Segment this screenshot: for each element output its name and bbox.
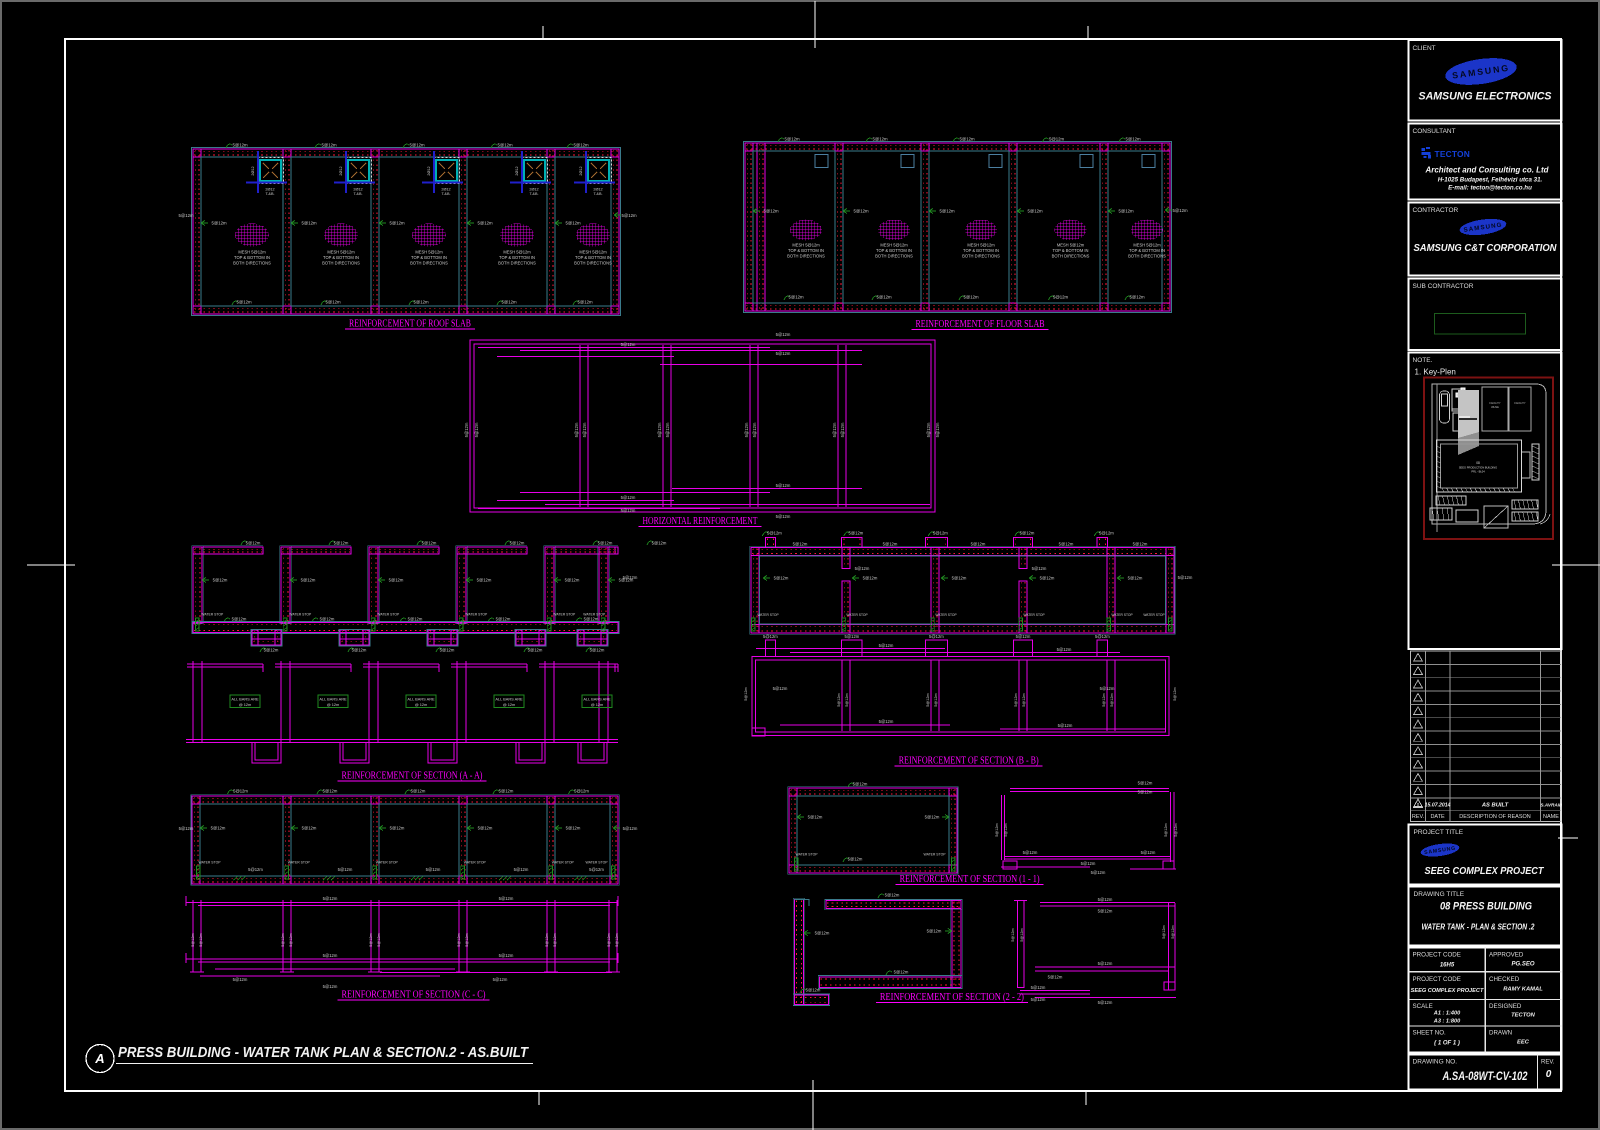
svg-text:5@12m: 5@12m	[929, 634, 944, 639]
svg-text:T.&B.: T.&B.	[265, 192, 274, 196]
svg-text:BOTH DIRECTIONS: BOTH DIRECTIONS	[233, 260, 271, 265]
svg-text:1. Key-Plen: 1. Key-Plen	[1415, 368, 1456, 377]
svg-text:2Ø12: 2Ø12	[339, 166, 343, 175]
svg-text:DRAWING NO.: DRAWING NO.	[1413, 1059, 1458, 1066]
svg-text:PG.SEO: PG.SEO	[1511, 962, 1534, 968]
svg-text:A3 : 1:800: A3 : 1:800	[1433, 1019, 1461, 1025]
svg-text:PROJECT CODE: PROJECT CODE	[1413, 976, 1461, 983]
svg-text:5@12m: 5@12m	[497, 143, 513, 148]
svg-text:5@12m: 5@12m	[832, 422, 837, 437]
svg-text:2Ø12: 2Ø12	[579, 166, 583, 175]
svg-text:5@12m: 5@12m	[971, 542, 986, 547]
svg-text:A: A	[94, 1051, 104, 1066]
svg-text:5@12m: 5@12m	[845, 634, 860, 639]
svg-text:WATER STOP: WATER STOP	[376, 861, 399, 865]
svg-text:5@12m: 5@12m	[925, 815, 940, 820]
svg-text:5@12m: 5@12m	[1098, 909, 1113, 914]
svg-text:5@12m: 5@12m	[1058, 723, 1073, 728]
svg-text:5@12m: 5@12m	[233, 977, 248, 982]
svg-text:5@12m: 5@12m	[574, 789, 589, 794]
svg-text:5@12m: 5@12m	[855, 566, 870, 571]
svg-text:5@12m: 5@12m	[389, 221, 405, 226]
svg-text:WHSE: WHSE	[1491, 405, 1499, 409]
svg-text:BOTH DIRECTIONS: BOTH DIRECTIONS	[1128, 253, 1166, 258]
svg-text:TOP & BOTTOM IN: TOP & BOTTOM IN	[323, 255, 359, 260]
svg-text:5@12m: 5@12m	[514, 867, 529, 872]
svg-text:DRAWN: DRAWN	[1489, 1030, 1512, 1037]
svg-text:5@12m: 5@12m	[1014, 693, 1018, 706]
svg-text:5@12m: 5@12m	[621, 342, 636, 347]
svg-text:5@12m: 5@12m	[598, 541, 613, 546]
svg-text:WATER STOP: WATER STOP	[1023, 613, 1045, 617]
svg-text:5@12m: 5@12m	[1048, 975, 1063, 980]
svg-text:T.&B.: T.&B.	[529, 192, 538, 196]
svg-text:5@12m: 5@12m	[872, 137, 888, 142]
svg-text:5@12m: 5@12m	[320, 617, 335, 622]
svg-text:5@12m: 5@12m	[178, 213, 194, 218]
svg-text:5@12m: 5@12m	[1178, 575, 1193, 580]
svg-text:5@12m: 5@12m	[1129, 295, 1145, 300]
svg-text:BOTH DIRECTIONS: BOTH DIRECTIONS	[962, 253, 1000, 258]
svg-text:5@12m: 5@12m	[477, 221, 493, 226]
svg-text:5@12m: 5@12m	[553, 933, 557, 946]
svg-text:@ 12m: @ 12m	[503, 702, 516, 707]
svg-text:ALL BARS ARE: ALL BARS ARE	[319, 697, 347, 702]
svg-text:5@12m: 5@12m	[199, 933, 203, 946]
svg-text:T.&B.: T.&B.	[593, 192, 602, 196]
svg-text:5@12m: 5@12m	[334, 541, 349, 546]
svg-text:5@12m: 5@12m	[885, 893, 900, 898]
svg-text:REV.: REV.	[1541, 1060, 1555, 1066]
svg-text:5@12m: 5@12m	[1173, 687, 1177, 700]
svg-text:5@12m: 5@12m	[657, 422, 662, 437]
svg-text:@ 12m: @ 12m	[239, 702, 252, 707]
svg-text:5@12m: 5@12m	[763, 209, 779, 214]
svg-text:5@12m: 5@12m	[264, 648, 279, 653]
svg-text:PROJECT TITLE: PROJECT TITLE	[1414, 829, 1464, 836]
svg-text:5@12m: 5@12m	[952, 576, 967, 581]
svg-text:WATER STOP: WATER STOP	[201, 613, 224, 617]
svg-text:2Ø12: 2Ø12	[427, 166, 431, 175]
svg-text:5@12m: 5@12m	[652, 541, 667, 546]
svg-text:2Ø12: 2Ø12	[251, 166, 255, 175]
svg-text:5@12m: 5@12m	[927, 929, 942, 934]
svg-text:5@12m: 5@12m	[1020, 928, 1024, 941]
svg-text:5@12m: 5@12m	[301, 578, 316, 583]
svg-text:5@12m: 5@12m	[211, 221, 227, 226]
svg-text:RAMY KAMAL: RAMY KAMAL	[1503, 987, 1543, 993]
svg-text:5@12m: 5@12m	[496, 617, 511, 622]
svg-text:TOP & BOTTOM IN: TOP & BOTTOM IN	[575, 255, 611, 260]
svg-text:PROJECT CODE: PROJECT CODE	[1413, 952, 1461, 959]
svg-text:( 1 OF 1 ): ( 1 OF 1 )	[1434, 1041, 1460, 1047]
svg-text:5@12m: 5@12m	[623, 826, 638, 831]
svg-text:HORIZONTAL REINFORCEMENT: HORIZONTAL REINFORCEMENT	[643, 515, 758, 527]
svg-text:5@12m: 5@12m	[776, 483, 791, 488]
svg-text:WATER STOP: WATER STOP	[552, 861, 575, 865]
svg-text:WATER STOP: WATER STOP	[846, 613, 868, 617]
svg-text:BOTH DIRECTIONS: BOTH DIRECTIONS	[1052, 253, 1090, 258]
svg-text:REINFORCEMENT OF SECTION (B -: REINFORCEMENT OF SECTION (B - B)	[899, 755, 1039, 767]
svg-text:5@12m: 5@12m	[784, 137, 800, 142]
svg-text:AS BUILT: AS BUILT	[1481, 803, 1509, 809]
svg-text:DESCRIPTION OF REASON: DESCRIPTION OF REASON	[1459, 814, 1531, 820]
svg-text:5@12m: 5@12m	[408, 617, 423, 622]
svg-text:WATER STOP: WATER STOP	[289, 613, 312, 617]
svg-text:5@12m: 5@12m	[323, 789, 338, 794]
svg-text:5@12m: 5@12m	[1091, 870, 1106, 875]
svg-text:5@12m: 5@12m	[1031, 985, 1046, 990]
svg-text:WATER STOP: WATER STOP	[464, 861, 487, 865]
svg-text:5@12m: 5@12m	[621, 508, 636, 513]
svg-text:5@12m: 5@12m	[413, 300, 429, 305]
svg-text:5@12m: 5@12m	[883, 542, 898, 547]
svg-text:5@12m: 5@12m	[876, 295, 892, 300]
svg-text:2Ø12: 2Ø12	[515, 166, 519, 175]
svg-text:2Ø12: 2Ø12	[593, 188, 602, 192]
svg-text:5@12m: 5@12m	[1141, 850, 1156, 855]
svg-text:5@12m: 5@12m	[845, 693, 849, 706]
svg-text:SAMSUNG C&T CORPORATION: SAMSUNG C&T CORPORATION	[1414, 243, 1558, 254]
svg-text:5@12m: 5@12m	[1032, 566, 1047, 571]
svg-text:TOP & BOTTOM IN: TOP & BOTTOM IN	[963, 248, 999, 253]
svg-text:NOTE.: NOTE.	[1413, 357, 1433, 364]
svg-text:5@12m: 5@12m	[621, 213, 637, 218]
svg-text:MESH 5@12m: MESH 5@12m	[503, 250, 531, 255]
svg-text:5@12m: 5@12m	[477, 578, 492, 583]
svg-text:5@12m: 5@12m	[233, 789, 248, 794]
svg-text:CONTRACTOR: CONTRACTOR	[1413, 207, 1459, 214]
svg-text:TOP & BOTTOM IN: TOP & BOTTOM IN	[788, 248, 824, 253]
svg-text:5@12m: 5@12m	[853, 209, 869, 214]
svg-text:SUB CONTRACTOR: SUB CONTRACTOR	[1413, 283, 1474, 290]
svg-text:5@12m: 5@12m	[323, 984, 338, 989]
svg-text:SHEET NO.: SHEET NO.	[1413, 1030, 1447, 1037]
svg-text:ALL BARS ARE: ALL BARS ARE	[495, 697, 523, 702]
svg-text:SCALE: SCALE	[1413, 1003, 1433, 1010]
svg-text:@ 12m: @ 12m	[415, 702, 428, 707]
svg-text:APPROVED: APPROVED	[1489, 952, 1524, 959]
svg-text:5@12m: 5@12m	[774, 576, 789, 581]
svg-text:2Ø12: 2Ø12	[529, 188, 538, 192]
svg-text:5@12m: 5@12m	[584, 617, 599, 622]
svg-text:5@12m: 5@12m	[369, 933, 373, 946]
svg-text:WATER STOP: WATER STOP	[377, 613, 400, 617]
svg-text:EEC: EEC	[1517, 1040, 1530, 1046]
svg-text:5@12m: 5@12m	[545, 933, 549, 946]
svg-text:5@12m: 5@12m	[848, 857, 863, 862]
svg-text:5@12m: 5@12m	[1138, 790, 1153, 795]
svg-text:2Ø12: 2Ø12	[353, 188, 362, 192]
svg-text:5@12m: 5@12m	[1057, 647, 1072, 652]
svg-text:5@12m: 5@12m	[1049, 137, 1065, 142]
svg-text:BOTH DIRECTIONS: BOTH DIRECTIONS	[787, 253, 825, 258]
svg-text:5@12m: 5@12m	[1162, 925, 1166, 938]
svg-text:5@12m: 5@12m	[1125, 137, 1141, 142]
svg-text:TOP & BOTTOM IN: TOP & BOTTOM IN	[499, 255, 535, 260]
svg-text:5@12m: 5@12m	[1110, 693, 1114, 706]
svg-text:5@12m: 5@12m	[1040, 576, 1055, 581]
svg-text:BOTH DIRECTIONS: BOTH DIRECTIONS	[410, 260, 448, 265]
svg-text:16H5: 16H5	[1440, 963, 1455, 969]
svg-text:5@12m: 5@12m	[935, 422, 940, 437]
svg-text:SEEG COMPLEX PROJECT: SEEG COMPLEX PROJECT	[1425, 866, 1545, 877]
svg-text:5@12m: 5@12m	[191, 933, 195, 946]
svg-text:5@12m: 5@12m	[776, 351, 791, 356]
svg-text:5@12m: 5@12m	[499, 789, 514, 794]
svg-text:5@12m: 5@12m	[582, 422, 587, 437]
svg-text:WATER STOP: WATER STOP	[553, 613, 576, 617]
svg-text:BOTH DIRECTIONS: BOTH DIRECTIONS	[498, 260, 536, 265]
svg-text:5@12m: 5@12m	[464, 422, 469, 437]
svg-text:5@12m: 5@12m	[934, 693, 938, 706]
svg-text:5@12m: 5@12m	[840, 422, 845, 437]
svg-text:TOP & BOTTOM IN: TOP & BOTTOM IN	[876, 248, 912, 253]
svg-text:5@12m: 5@12m	[338, 867, 353, 872]
svg-text:5@12m: 5@12m	[281, 933, 285, 946]
svg-text:WATER STOP: WATER STOP	[465, 613, 488, 617]
svg-text:E-mail: tecton@tecton.co.hu: E-mail: tecton@tecton.co.hu	[1448, 185, 1532, 192]
svg-text:5@12m: 5@12m	[422, 541, 437, 546]
svg-text:5@12m: 5@12m	[1138, 781, 1153, 786]
svg-text:PRESS BUILDING - WATER TANK PL: PRESS BUILDING - WATER TANK PLAN & SECTI…	[118, 1044, 530, 1061]
svg-text:MESH 5@12m: MESH 5@12m	[415, 250, 443, 255]
svg-text:5@12m: 5@12m	[808, 815, 823, 820]
svg-text:@ 12m: @ 12m	[327, 702, 340, 707]
svg-text:5@12m: 5@12m	[573, 143, 589, 148]
svg-text:5@12m: 5@12m	[352, 648, 367, 653]
svg-text:ALL BARS ARE: ALL BARS ARE	[231, 697, 259, 702]
svg-text:5@12m: 5@12m	[849, 531, 864, 536]
svg-text:FACILITY: FACILITY	[1489, 401, 1501, 405]
svg-text:0: 0	[1546, 1069, 1552, 1080]
svg-text:REINFORCEMENT OF SECTION (A -: REINFORCEMENT OF SECTION (A - A)	[342, 770, 483, 782]
svg-text:5@12m: 5@12m	[1023, 850, 1038, 855]
svg-text:5@12m: 5@12m	[528, 648, 543, 653]
svg-text:5@12m: 5@12m	[744, 422, 749, 437]
svg-text:T.&B.: T.&B.	[353, 192, 362, 196]
svg-text:15.07.2014: 15.07.2014	[1425, 803, 1451, 809]
svg-text:5@12m: 5@12m	[744, 687, 748, 700]
svg-text:5@12m: 5@12m	[493, 977, 508, 982]
svg-text:MESH 5@12m: MESH 5@12m	[327, 250, 355, 255]
svg-text:5@12m: 5@12m	[474, 422, 479, 437]
svg-text:5@12m: 5@12m	[577, 300, 593, 305]
svg-text:5@12m: 5@12m	[615, 933, 619, 946]
svg-text:5@12m: 5@12m	[933, 531, 948, 536]
svg-text:5@12m: 5@12m	[1011, 928, 1015, 941]
svg-text:REV.: REV.	[1412, 814, 1425, 820]
svg-text:5@12m: 5@12m	[879, 719, 894, 724]
svg-text:SAMSUNG ELECTRONICS: SAMSUNG ELECTRONICS	[1419, 91, 1552, 103]
svg-text:5@12m: 5@12m	[232, 617, 247, 622]
svg-text:MESH 5@12m: MESH 5@12m	[880, 243, 908, 248]
svg-text:5@12m: 5@12m	[1164, 823, 1168, 836]
svg-text:5@12m: 5@12m	[793, 542, 808, 547]
svg-text:5@12m: 5@12m	[995, 823, 999, 836]
svg-text:MESH 5@12m: MESH 5@12m	[238, 250, 266, 255]
svg-text:5@12m: 5@12m	[879, 643, 894, 648]
svg-text:Architect and Consulting co. L: Architect and Consulting co. Ltd	[1425, 166, 1550, 175]
svg-text:5@12m: 5@12m	[323, 953, 338, 958]
svg-text:5@12m: 5@12m	[1027, 209, 1043, 214]
svg-text:A1 : 1:400: A1 : 1:400	[1433, 1011, 1461, 1017]
svg-text:5@12m: 5@12m	[574, 422, 579, 437]
svg-text:5@12m: 5@12m	[621, 495, 636, 500]
svg-text:5@12m: 5@12m	[926, 693, 930, 706]
svg-text:WATER STOP: WATER STOP	[935, 613, 957, 617]
svg-text:WATER STOP: WATER STOP	[796, 853, 819, 857]
svg-text:REINFORCEMENT OF FLOOR SLAB: REINFORCEMENT OF FLOOR SLAB	[916, 318, 1045, 330]
svg-text:WATER STOP: WATER STOP	[288, 861, 311, 865]
svg-text:WATER STOP: WATER STOP	[583, 613, 606, 617]
svg-text:FACILITY: FACILITY	[1514, 401, 1526, 405]
svg-text:5@12m: 5@12m	[1059, 542, 1074, 547]
svg-text:5@12m: 5@12m	[1133, 542, 1148, 547]
svg-text:REINFORCEMENT OF SECTION (C -: REINFORCEMENT OF SECTION (C - C)	[342, 989, 486, 1001]
svg-text:5@12m: 5@12m	[323, 896, 338, 901]
svg-text:5@12m: 5@12m	[499, 896, 514, 901]
svg-text:CLIENT: CLIENT	[1413, 45, 1436, 52]
svg-text:@ 12m: @ 12m	[591, 702, 604, 707]
svg-text:WATER TANK - PLAN & SECTION .2: WATER TANK - PLAN & SECTION .2	[1422, 923, 1535, 932]
svg-text:5@12m: 5@12m	[806, 988, 821, 993]
svg-text:MESH 5@12m: MESH 5@12m	[1057, 243, 1085, 248]
svg-text:CHECKED: CHECKED	[1489, 976, 1520, 983]
svg-text:5@12m: 5@12m	[863, 576, 878, 581]
svg-text:BOTH DIRECTIONS: BOTH DIRECTIONS	[322, 260, 360, 265]
svg-text:T.&B.: T.&B.	[441, 192, 450, 196]
svg-text:5@12m: 5@12m	[289, 933, 293, 946]
svg-text:5@12m: 5@12m	[389, 578, 404, 583]
svg-text:MESH 5@12m: MESH 5@12m	[792, 243, 820, 248]
svg-text:WATER STOP: WATER STOP	[757, 613, 779, 617]
svg-text:5@12m: 5@12m	[837, 693, 841, 706]
svg-text:ALL BARS ARE: ALL BARS ARE	[583, 697, 611, 702]
svg-text:5@12m: 5@12m	[815, 931, 830, 936]
svg-text:5@12m: 5@12m	[1004, 823, 1008, 836]
svg-text:NAME: NAME	[1543, 814, 1559, 820]
svg-text:5@12m: 5@12m	[246, 541, 261, 546]
svg-text:S.AVRAM: S.AVRAM	[1540, 803, 1561, 808]
svg-text:MESH 5@12m: MESH 5@12m	[967, 243, 995, 248]
svg-text:5@12m: 5@12m	[1031, 997, 1046, 1002]
svg-text:5@12m: 5@12m	[1099, 531, 1114, 536]
svg-text:5@12m: 5@12m	[1118, 209, 1134, 214]
svg-text:DRAWING TITLE: DRAWING TITLE	[1414, 891, 1465, 898]
svg-text:REINFORCEMENT OF SECTION (2 -: REINFORCEMENT OF SECTION (2 - 2)	[880, 991, 1024, 1003]
svg-text:ALL BARS ARE: ALL BARS ARE	[407, 697, 435, 702]
svg-text:5@12m: 5@12m	[763, 634, 778, 639]
svg-text:5@12m: 5@12m	[1016, 634, 1031, 639]
svg-text:WATER STOP: WATER STOP	[924, 853, 947, 857]
svg-text:5@12m: 5@12m	[1022, 693, 1026, 706]
svg-text:5@12m: 5@12m	[752, 422, 757, 437]
svg-text:REINFORCEMENT OF ROOF SLAB: REINFORCEMENT OF ROOF SLAB	[349, 318, 471, 330]
svg-text:5@12m: 5@12m	[566, 826, 581, 831]
svg-text:WATER STOP: WATER STOP	[1111, 613, 1133, 617]
svg-text:5@12m: 5@12m	[565, 221, 581, 226]
svg-text:5@12m: 5@12m	[440, 648, 455, 653]
svg-text:TOP & BOTTOM IN: TOP & BOTTOM IN	[234, 255, 270, 260]
svg-text:5@12m: 5@12m	[1020, 531, 1035, 536]
svg-text:5@12m: 5@12m	[236, 300, 252, 305]
svg-text:5@12m: 5@12m	[409, 143, 425, 148]
svg-text:5@12m: 5@12m	[325, 300, 341, 305]
svg-text:5@12m: 5@12m	[1172, 208, 1188, 213]
svg-text:SEEG PRODUCTION BUILDING: SEEG PRODUCTION BUILDING	[1459, 466, 1497, 470]
svg-text:5@12m: 5@12m	[788, 295, 804, 300]
svg-text:H-1025 Budapest, Felhévizi utc: H-1025 Budapest, Felhévizi utca 31.	[1438, 177, 1543, 184]
svg-text:5@12m: 5@12m	[776, 332, 791, 337]
svg-text:TECTON: TECTON	[1435, 149, 1470, 159]
svg-text:5@12m: 5@12m	[426, 867, 441, 872]
svg-text:5@12m: 5@12m	[589, 867, 604, 872]
svg-text:5@12m: 5@12m	[1171, 925, 1175, 938]
svg-text:5@12m: 5@12m	[1098, 961, 1113, 966]
svg-text:TOP & BOTTOM IN: TOP & BOTTOM IN	[1053, 248, 1089, 253]
svg-text:5@12m: 5@12m	[926, 422, 931, 437]
svg-text:WATER STOP: WATER STOP	[586, 861, 609, 865]
svg-text:5@12m: 5@12m	[776, 514, 791, 519]
svg-text:MESH 5@12m: MESH 5@12m	[1133, 243, 1161, 248]
svg-text:CONSULTANT: CONSULTANT	[1413, 128, 1456, 135]
svg-text:5@12m: 5@12m	[302, 826, 317, 831]
svg-text:2Ø12: 2Ø12	[441, 188, 450, 192]
svg-text:DESIGNED: DESIGNED	[1489, 1003, 1522, 1010]
svg-text:5@12m: 5@12m	[510, 541, 525, 546]
svg-text:5@12m: 5@12m	[248, 867, 263, 872]
svg-text:BOTH DIRECTIONS: BOTH DIRECTIONS	[574, 260, 612, 265]
svg-text:5@12m: 5@12m	[1128, 576, 1143, 581]
svg-text:5@12m: 5@12m	[457, 933, 461, 946]
svg-text:TOP & BOTTOM IN: TOP & BOTTOM IN	[1129, 248, 1165, 253]
svg-text:5@12m: 5@12m	[773, 686, 788, 691]
svg-text:5@12m: 5@12m	[894, 970, 909, 975]
svg-text:TECTON: TECTON	[1511, 1013, 1536, 1019]
svg-text:5@12m: 5@12m	[377, 933, 381, 946]
svg-text:5@12m: 5@12m	[501, 300, 517, 305]
svg-text:5@12m: 5@12m	[665, 422, 670, 437]
svg-text:5@12m: 5@12m	[179, 826, 194, 831]
svg-text:5@12m: 5@12m	[390, 826, 405, 831]
svg-text:5@12m: 5@12m	[853, 782, 868, 787]
svg-text:5@12m: 5@12m	[1053, 295, 1069, 300]
svg-text:5@12m: 5@12m	[963, 295, 979, 300]
svg-text:WATER STOP: WATER STOP	[199, 861, 222, 865]
svg-text:5@12m: 5@12m	[1098, 1000, 1113, 1005]
svg-text:5@12m: 5@12m	[232, 143, 248, 148]
svg-text:5@12m: 5@12m	[1100, 686, 1115, 691]
svg-text:REINFORCEMENT OF SECTION (1 -: REINFORCEMENT OF SECTION (1 - 1)	[900, 873, 1040, 885]
svg-text:5@12m: 5@12m	[321, 143, 337, 148]
svg-text:5@12m: 5@12m	[959, 137, 975, 142]
svg-text:5@12m: 5@12m	[1098, 897, 1113, 902]
svg-text:5@12m: 5@12m	[301, 221, 317, 226]
svg-text:5@12m: 5@12m	[499, 953, 514, 958]
svg-text:08 PRESS BUILDING: 08 PRESS BUILDING	[1440, 901, 1533, 913]
svg-text:5@12m: 5@12m	[565, 578, 580, 583]
svg-text:MESH 5@12m: MESH 5@12m	[579, 250, 607, 255]
svg-text:5@12m: 5@12m	[465, 933, 469, 946]
svg-text:5@12m: 5@12m	[478, 826, 493, 831]
svg-text:TOP & BOTTOM IN: TOP & BOTTOM IN	[411, 255, 447, 260]
svg-text:5@12m: 5@12m	[767, 531, 782, 536]
svg-text:5@12m: 5@12m	[623, 575, 638, 580]
svg-text:A.SA-08WT-CV-102: A.SA-08WT-CV-102	[1442, 1071, 1528, 1083]
svg-text:5@12m: 5@12m	[1102, 693, 1106, 706]
svg-text:BOTH DIRECTIONS: BOTH DIRECTIONS	[875, 253, 913, 258]
